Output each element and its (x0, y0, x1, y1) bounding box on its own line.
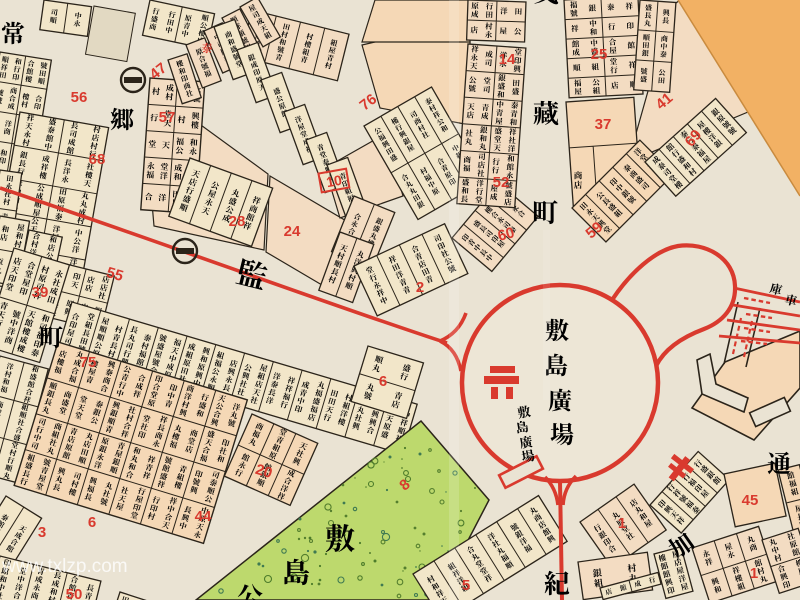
svg-text:1: 1 (618, 515, 626, 532)
svg-text:24: 24 (284, 223, 301, 240)
svg-text:52: 52 (493, 174, 510, 191)
svg-text:1: 1 (750, 565, 758, 582)
svg-text:57: 57 (159, 109, 176, 126)
svg-text:56: 56 (71, 89, 88, 106)
svg-text:25: 25 (591, 46, 608, 63)
svg-text:3: 3 (38, 524, 46, 541)
svg-text:2: 2 (416, 279, 424, 296)
svg-text:6: 6 (379, 373, 387, 390)
svg-text:www.txlzp.com: www.txlzp.com (1, 556, 128, 577)
svg-text:14: 14 (499, 51, 516, 68)
svg-text:44: 44 (195, 508, 212, 525)
svg-text:37: 37 (595, 116, 612, 133)
svg-text:39: 39 (32, 284, 49, 301)
svg-text:6: 6 (88, 514, 96, 531)
svg-text:45: 45 (742, 492, 759, 509)
svg-text:10: 10 (325, 172, 343, 190)
svg-text:5: 5 (462, 577, 470, 594)
svg-text:28: 28 (229, 213, 246, 230)
svg-text:68: 68 (89, 151, 106, 168)
svg-text:50: 50 (66, 586, 83, 600)
svg-text:75: 75 (80, 354, 97, 371)
